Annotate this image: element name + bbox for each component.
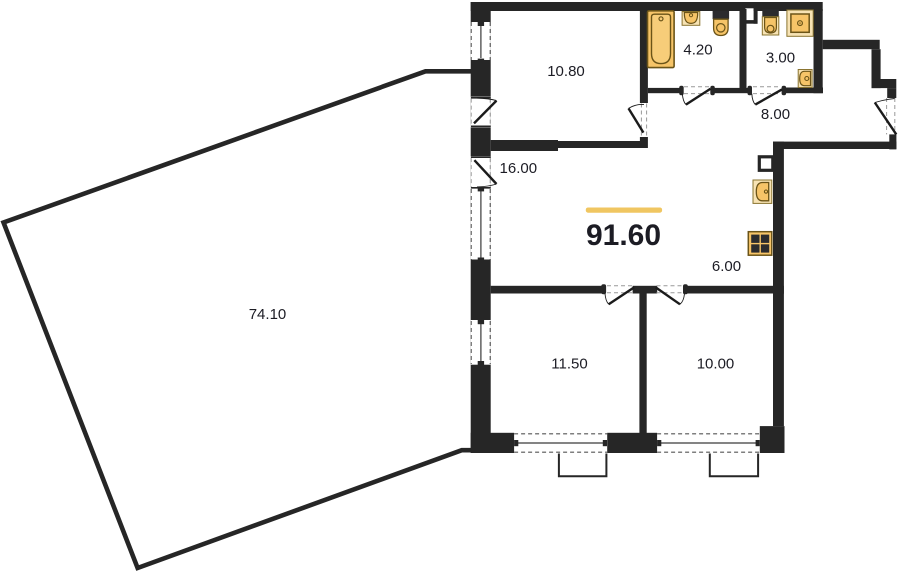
svg-text:4.20: 4.20 xyxy=(683,42,712,59)
svg-text:10.00: 10.00 xyxy=(697,356,735,373)
svg-text:16.00: 16.00 xyxy=(500,160,538,177)
svg-text:8.00: 8.00 xyxy=(761,106,790,123)
svg-text:74.10: 74.10 xyxy=(249,306,287,323)
svg-text:11.50: 11.50 xyxy=(551,356,587,373)
svg-text:10.80: 10.80 xyxy=(547,63,585,80)
svg-text:6.00: 6.00 xyxy=(712,258,741,275)
svg-text:91.60: 91.60 xyxy=(586,219,661,252)
svg-text:3.00: 3.00 xyxy=(766,50,795,67)
